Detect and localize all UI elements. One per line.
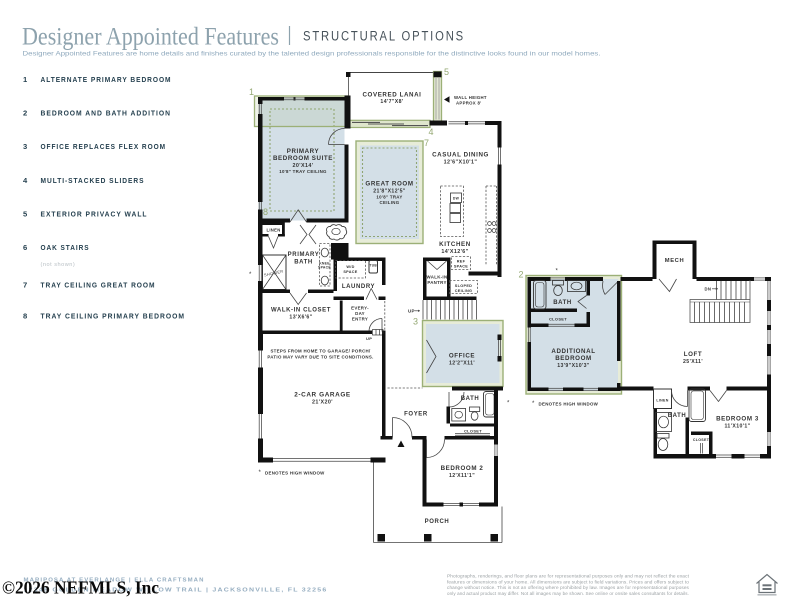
svg-text:FOYER: FOYER [404, 412, 428, 418]
svg-text:KITCHEN: KITCHEN [439, 241, 471, 248]
svg-text:change without notice. This is: change without notice. This is not an of… [447, 585, 690, 590]
svg-text:DW: DW [453, 197, 460, 201]
svg-text:UP: UP [366, 336, 372, 341]
svg-text:WALL HEIGHT: WALL HEIGHT [454, 95, 487, 100]
svg-text:BATH: BATH [294, 260, 313, 266]
svg-text:2: 2 [519, 270, 524, 280]
svg-text:BATH: BATH [553, 300, 572, 306]
svg-text:2: 2 [23, 109, 28, 118]
svg-text:14'X12'6": 14'X12'6" [441, 249, 468, 255]
svg-text:PATIO MAY VARY DUE TO SITE CON: PATIO MAY VARY DUE TO SITE CONDITIONS. [267, 355, 373, 360]
svg-text:UP: UP [408, 309, 415, 314]
svg-text:TRAY CEILING PRIMARY BEDROOM: TRAY CEILING PRIMARY BEDROOM [41, 312, 186, 321]
svg-text:DN: DN [705, 287, 712, 292]
svg-text:MECH: MECH [665, 258, 684, 264]
svg-text:12'2"X11': 12'2"X11' [449, 361, 475, 367]
svg-text:2-CAR GARAGE: 2-CAR GARAGE [294, 392, 351, 399]
svg-text:PANTRY: PANTRY [427, 280, 446, 285]
svg-text:BATH: BATH [461, 396, 480, 402]
svg-text:STRUCTURAL OPTIONS: STRUCTURAL OPTIONS [303, 29, 465, 44]
svg-text:BATH: BATH [668, 413, 687, 419]
svg-text:*: * [507, 401, 510, 407]
svg-text:Designer Appointed Features: Designer Appointed Features [22, 22, 279, 51]
svg-text:LAUNDRY: LAUNDRY [342, 284, 375, 290]
svg-text:DENOTES HIGH WINDOW: DENOTES HIGH WINDOW [539, 402, 599, 407]
svg-text:3: 3 [413, 317, 418, 327]
svg-text:12'6"X10'1": 12'6"X10'1" [444, 160, 478, 166]
svg-text:BEDROOM 2: BEDROOM 2 [441, 465, 484, 472]
svg-text:10'8" TRAY CEILING: 10'8" TRAY CEILING [279, 169, 327, 174]
svg-text:©2026 NEFMLS, Inc: ©2026 NEFMLS, Inc [2, 578, 159, 598]
svg-text:7: 7 [424, 138, 429, 148]
svg-text:CLOSET: CLOSET [549, 317, 567, 322]
svg-text:ALTERNATE PRIMARY BEDROOM: ALTERNATE PRIMARY BEDROOM [41, 75, 172, 84]
svg-text:8: 8 [23, 312, 28, 321]
svg-text:LINEN: LINEN [266, 228, 280, 233]
svg-text:WALK-IN: WALK-IN [427, 275, 448, 280]
svg-text:SPACE: SPACE [454, 265, 468, 269]
svg-text:OAK STAIRS: OAK STAIRS [41, 243, 90, 252]
svg-text:Photographs, renderings, and f: Photographs, renderings, and floor plans… [447, 574, 690, 579]
svg-text:5: 5 [23, 209, 28, 218]
svg-text:13'X6'6": 13'X6'6" [289, 315, 312, 321]
svg-text:CLOSET: CLOSET [693, 438, 710, 442]
svg-text:DENOTES HIGH WINDOW: DENOTES HIGH WINDOW [265, 471, 325, 476]
svg-text:PRIMARY: PRIMARY [287, 148, 320, 155]
svg-text:CLOSET: CLOSET [464, 429, 482, 434]
svg-text:11'X10'1": 11'X10'1" [724, 424, 750, 430]
svg-text:10'8" TRAY: 10'8" TRAY [376, 195, 402, 200]
svg-text:PRIMARY: PRIMARY [288, 252, 320, 258]
svg-text:25'X11': 25'X11' [683, 359, 703, 365]
svg-text:6: 6 [23, 243, 28, 252]
svg-text:BEDROOM: BEDROOM [555, 355, 592, 362]
svg-text:4: 4 [429, 127, 434, 137]
svg-text:13'9"X10'3": 13'9"X10'3" [557, 363, 590, 369]
svg-text:12'X11'1": 12'X11'1" [449, 473, 475, 479]
svg-text:PORCH: PORCH [425, 519, 450, 525]
svg-text:21'X20': 21'X20' [312, 400, 333, 406]
svg-text:3: 3 [23, 142, 28, 151]
svg-text:SLOPED: SLOPED [455, 284, 472, 288]
svg-text:*: * [556, 269, 559, 275]
svg-text:MULTI-STACKED SLIDERS: MULTI-STACKED SLIDERS [41, 176, 145, 185]
svg-text:EXTERIOR PRIVACY WALL: EXTERIOR PRIVACY WALL [41, 209, 148, 218]
svg-text:*: * [249, 272, 252, 278]
svg-text:GREAT ROOM: GREAT ROOM [365, 181, 413, 188]
svg-text:CEILING: CEILING [380, 200, 400, 205]
svg-text:WALK-IN CLOSET: WALK-IN CLOSET [271, 308, 331, 314]
svg-text:7: 7 [23, 280, 28, 289]
svg-text:W/D: W/D [346, 265, 354, 269]
svg-text:OFFICE REPLACES FLEX ROOM: OFFICE REPLACES FLEX ROOM [41, 142, 167, 151]
svg-text:(not shown): (not shown) [41, 262, 76, 268]
svg-text:*: * [259, 470, 262, 476]
svg-text:EVERY-: EVERY- [351, 306, 369, 311]
svg-text:1: 1 [23, 75, 28, 84]
svg-text:OFFICE: OFFICE [449, 353, 475, 360]
svg-text:BEDROOM 3: BEDROOM 3 [716, 416, 759, 423]
svg-text:ENTRY: ENTRY [352, 317, 368, 322]
svg-text:only and actual product may di: only and actual product may differ. Not … [447, 591, 689, 596]
svg-text:CEILING: CEILING [455, 289, 473, 293]
svg-text:ADDITIONAL: ADDITIONAL [551, 348, 595, 355]
svg-text:BEDROOM SUITE: BEDROOM SUITE [273, 155, 333, 162]
svg-text:4: 4 [23, 176, 28, 185]
svg-text:CASUAL DINING: CASUAL DINING [432, 152, 489, 159]
svg-text:14'7"X8': 14'7"X8' [380, 99, 403, 105]
svg-text:1: 1 [249, 87, 254, 97]
svg-text:8: 8 [263, 207, 268, 217]
svg-text:LINEN: LINEN [656, 399, 668, 403]
svg-text:APPROX 8': APPROX 8' [456, 101, 481, 106]
svg-text:LOFT: LOFT [684, 351, 703, 358]
svg-text:features or dimensions of your: features or dimensions of your home. All… [447, 579, 689, 584]
svg-text:SHOWER: SHOWER [263, 269, 283, 278]
svg-text:SPACE: SPACE [343, 270, 357, 274]
svg-text:Designer Appointed Features ar: Designer Appointed Features are home det… [23, 51, 601, 58]
svg-text:*: * [532, 401, 535, 407]
svg-text:BEDROOM AND BATH ADDITION: BEDROOM AND BATH ADDITION [41, 109, 172, 118]
svg-text:DAY: DAY [355, 311, 365, 316]
svg-text:TUB: TUB [370, 264, 378, 268]
svg-text:STEPS FROM HOME TO GARAGE/ POR: STEPS FROM HOME TO GARAGE/ PORCH/ [270, 349, 371, 354]
svg-text:5: 5 [444, 67, 449, 77]
svg-text:SPACE: SPACE [318, 266, 331, 270]
svg-text:TRAY CEILING GREAT ROOM: TRAY CEILING GREAT ROOM [41, 280, 156, 289]
svg-text:COVERED LANAI: COVERED LANAI [362, 92, 421, 99]
svg-text:REF: REF [457, 260, 466, 264]
